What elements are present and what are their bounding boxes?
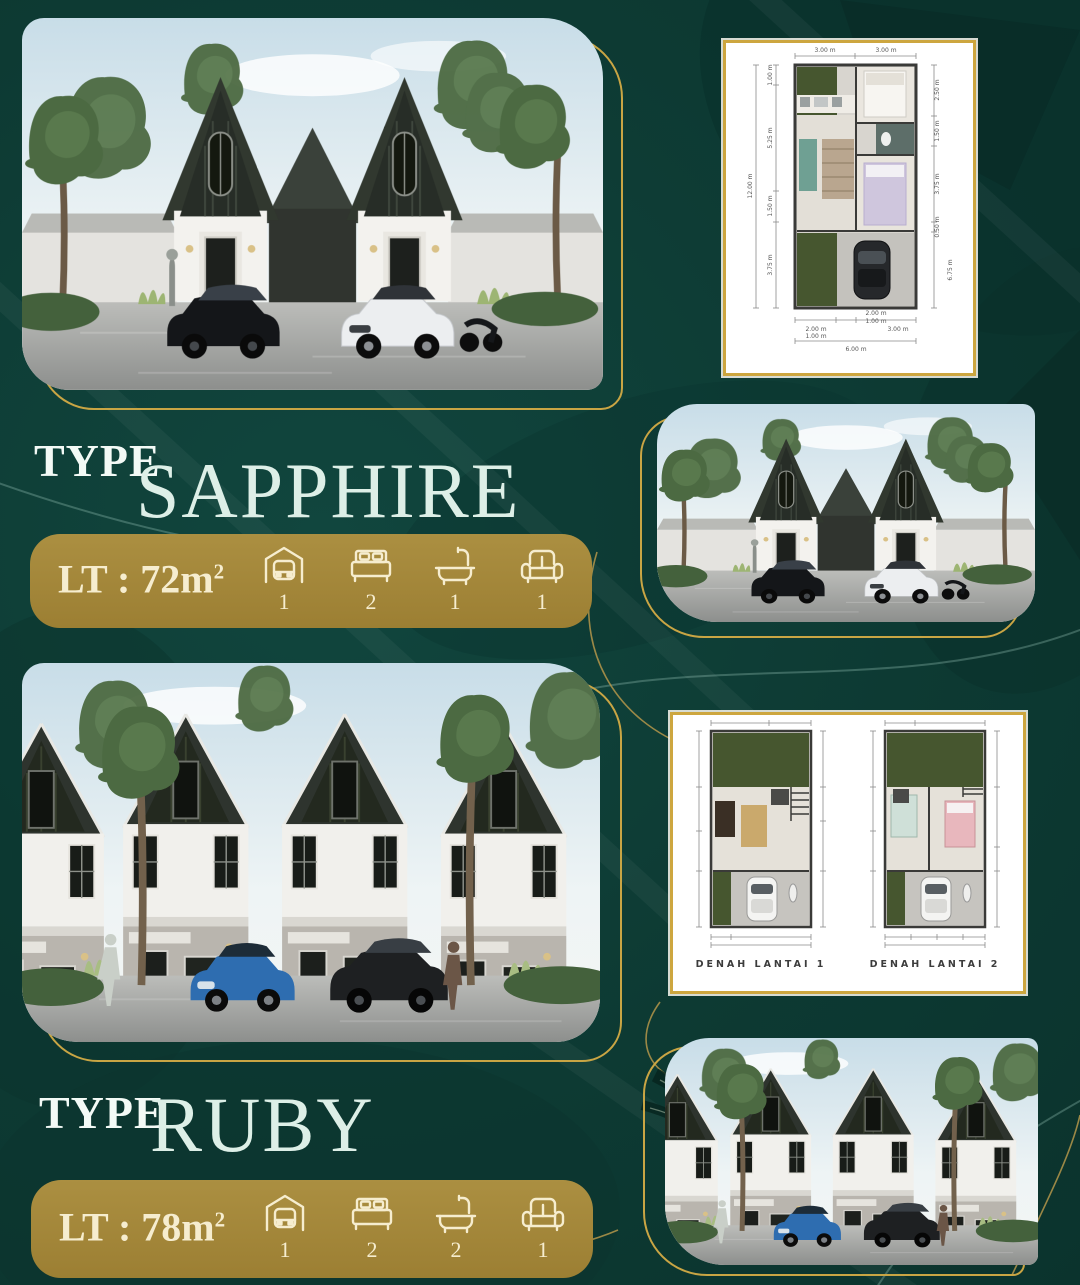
svg-text:2.00 m: 2.00 m xyxy=(805,326,826,333)
svg-text:1.00 m: 1.00 m xyxy=(767,64,774,85)
ruby-exterior-photo xyxy=(22,663,600,1042)
svg-text:0.50 m: 0.50 m xyxy=(934,216,941,237)
svg-text:12.00 m: 12.00 m xyxy=(747,173,754,198)
svg-text:5.25 m: 5.25 m xyxy=(767,127,774,148)
denah-lantai-2-caption: DENAH LANTAI 2 xyxy=(870,959,1001,970)
floorplan-car xyxy=(854,241,890,299)
sofa-icon xyxy=(519,544,565,588)
sapphire-floorplan-drawing: 3.00 m 3.00 m 1.00 m 5.25 m 1.50 m 3.75 … xyxy=(726,43,973,373)
svg-text:3.75 m: 3.75 m xyxy=(767,254,774,275)
ruby-spec-badge: LT : 78m2 1 2 2 xyxy=(31,1180,593,1278)
feature-bathtub: 2 xyxy=(424,1192,488,1261)
sapphire-floorplan-card: 3.00 m 3.00 m 1.00 m 5.25 m 1.50 m 3.75 … xyxy=(723,40,976,376)
feature-bed: 2 xyxy=(339,544,403,613)
svg-text:3.00 m: 3.00 m xyxy=(887,326,908,333)
ruby-floorplan-card: DENAH LANTAI 1 DENAH LANTAI 2 xyxy=(670,712,1026,994)
denah-lantai-1-caption: DENAH LANTAI 1 xyxy=(696,959,827,970)
ruby-type-name: RUBY xyxy=(150,1080,375,1170)
feature-bed: 2 xyxy=(340,1192,404,1261)
ruby-land-area: LT : 78m2 xyxy=(59,1204,225,1251)
feature-garage: 1 xyxy=(252,544,316,613)
bathtub-icon xyxy=(432,544,478,588)
bed-icon xyxy=(348,544,394,588)
svg-text:2.50 m: 2.50 m xyxy=(934,79,941,100)
feature-garage: 1 xyxy=(253,1192,317,1261)
sapphire-spec-badge: LT : 72m2 1 2 1 xyxy=(30,534,592,628)
feature-sofa: 1 xyxy=(510,544,574,613)
garage-icon xyxy=(262,1192,308,1236)
floorplan-white-car xyxy=(747,877,777,921)
feature-sofa: 1 xyxy=(511,1192,575,1261)
sapphire-exterior-photo-2 xyxy=(657,404,1035,622)
bed-icon xyxy=(349,1192,395,1236)
ruby-type-label: TYPE xyxy=(39,1086,166,1139)
garage-icon xyxy=(261,544,307,588)
svg-text:6.00 m: 6.00 m xyxy=(845,346,866,353)
svg-text:3.75 m: 3.75 m xyxy=(934,173,941,194)
floorplan-white-car xyxy=(921,877,951,921)
ruby-floorplan-drawing: DENAH LANTAI 1 DENAH LANTAI 2 xyxy=(673,715,1023,991)
svg-text:1.00 m: 1.00 m xyxy=(865,318,886,325)
feature-bathtub: 1 xyxy=(423,544,487,613)
svg-text:3.00 m: 3.00 m xyxy=(814,47,835,54)
svg-text:1.50 m: 1.50 m xyxy=(767,195,774,216)
svg-text:3.00 m: 3.00 m xyxy=(875,47,896,54)
sapphire-land-area: LT : 72m2 xyxy=(58,556,224,603)
sapphire-type-name: SAPPHIRE xyxy=(136,446,520,536)
svg-text:1.50 m: 1.50 m xyxy=(934,120,941,141)
flyer-page: 3.00 m 3.00 m 1.00 m 5.25 m 1.50 m 3.75 … xyxy=(0,0,1080,1285)
svg-text:1.00 m: 1.00 m xyxy=(805,333,826,340)
bathtub-icon xyxy=(433,1192,479,1236)
svg-text:2.00 m: 2.00 m xyxy=(865,310,886,317)
ruby-exterior-photo-2 xyxy=(665,1038,1038,1265)
svg-text:6.75 m: 6.75 m xyxy=(947,259,954,280)
sofa-icon xyxy=(520,1192,566,1236)
sapphire-exterior-photo xyxy=(22,18,603,390)
